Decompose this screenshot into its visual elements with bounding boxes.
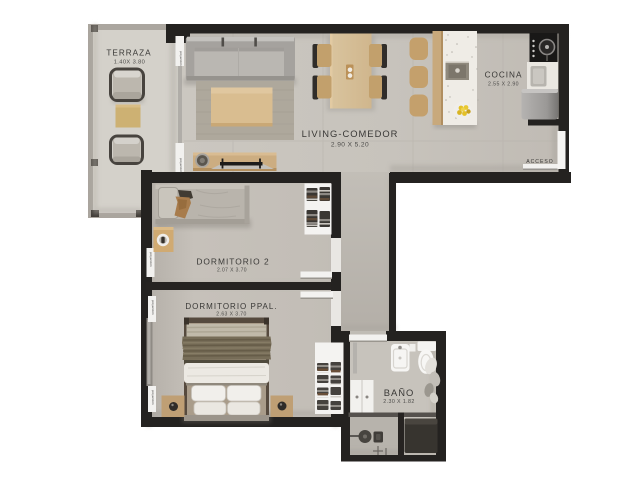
svg-text:COCINA: COCINA	[485, 71, 523, 80]
svg-text:proyección: proyección	[151, 390, 155, 405]
svg-text:2.07 X 3.70: 2.07 X 3.70	[217, 268, 247, 274]
svg-text:BAÑO: BAÑO	[384, 387, 415, 398]
svg-text:proyección: proyección	[149, 252, 153, 267]
svg-text:proyección: proyección	[179, 158, 183, 173]
svg-text:DORMITORIO 2: DORMITORIO 2	[196, 256, 269, 266]
svg-text:2.90 X 5.20: 2.90 X 5.20	[331, 142, 369, 149]
svg-text:1.40X 3.80: 1.40X 3.80	[114, 59, 146, 65]
svg-text:2.30 X 1.82: 2.30 X 1.82	[383, 399, 415, 405]
svg-text:proyección: proyección	[179, 51, 183, 66]
svg-text:DORMITORIO PPAL.: DORMITORIO PPAL.	[185, 302, 277, 311]
svg-text:proyección: proyección	[151, 300, 155, 315]
svg-text:ACCESO: ACCESO	[526, 159, 554, 165]
svg-text:TERRAZA: TERRAZA	[106, 49, 151, 58]
svg-text:2.55 X 2.90: 2.55 X 2.90	[488, 82, 519, 88]
svg-text:LIVING-COMEDOR: LIVING-COMEDOR	[302, 128, 399, 139]
svg-text:2.63 X 3.70: 2.63 X 3.70	[216, 312, 246, 318]
